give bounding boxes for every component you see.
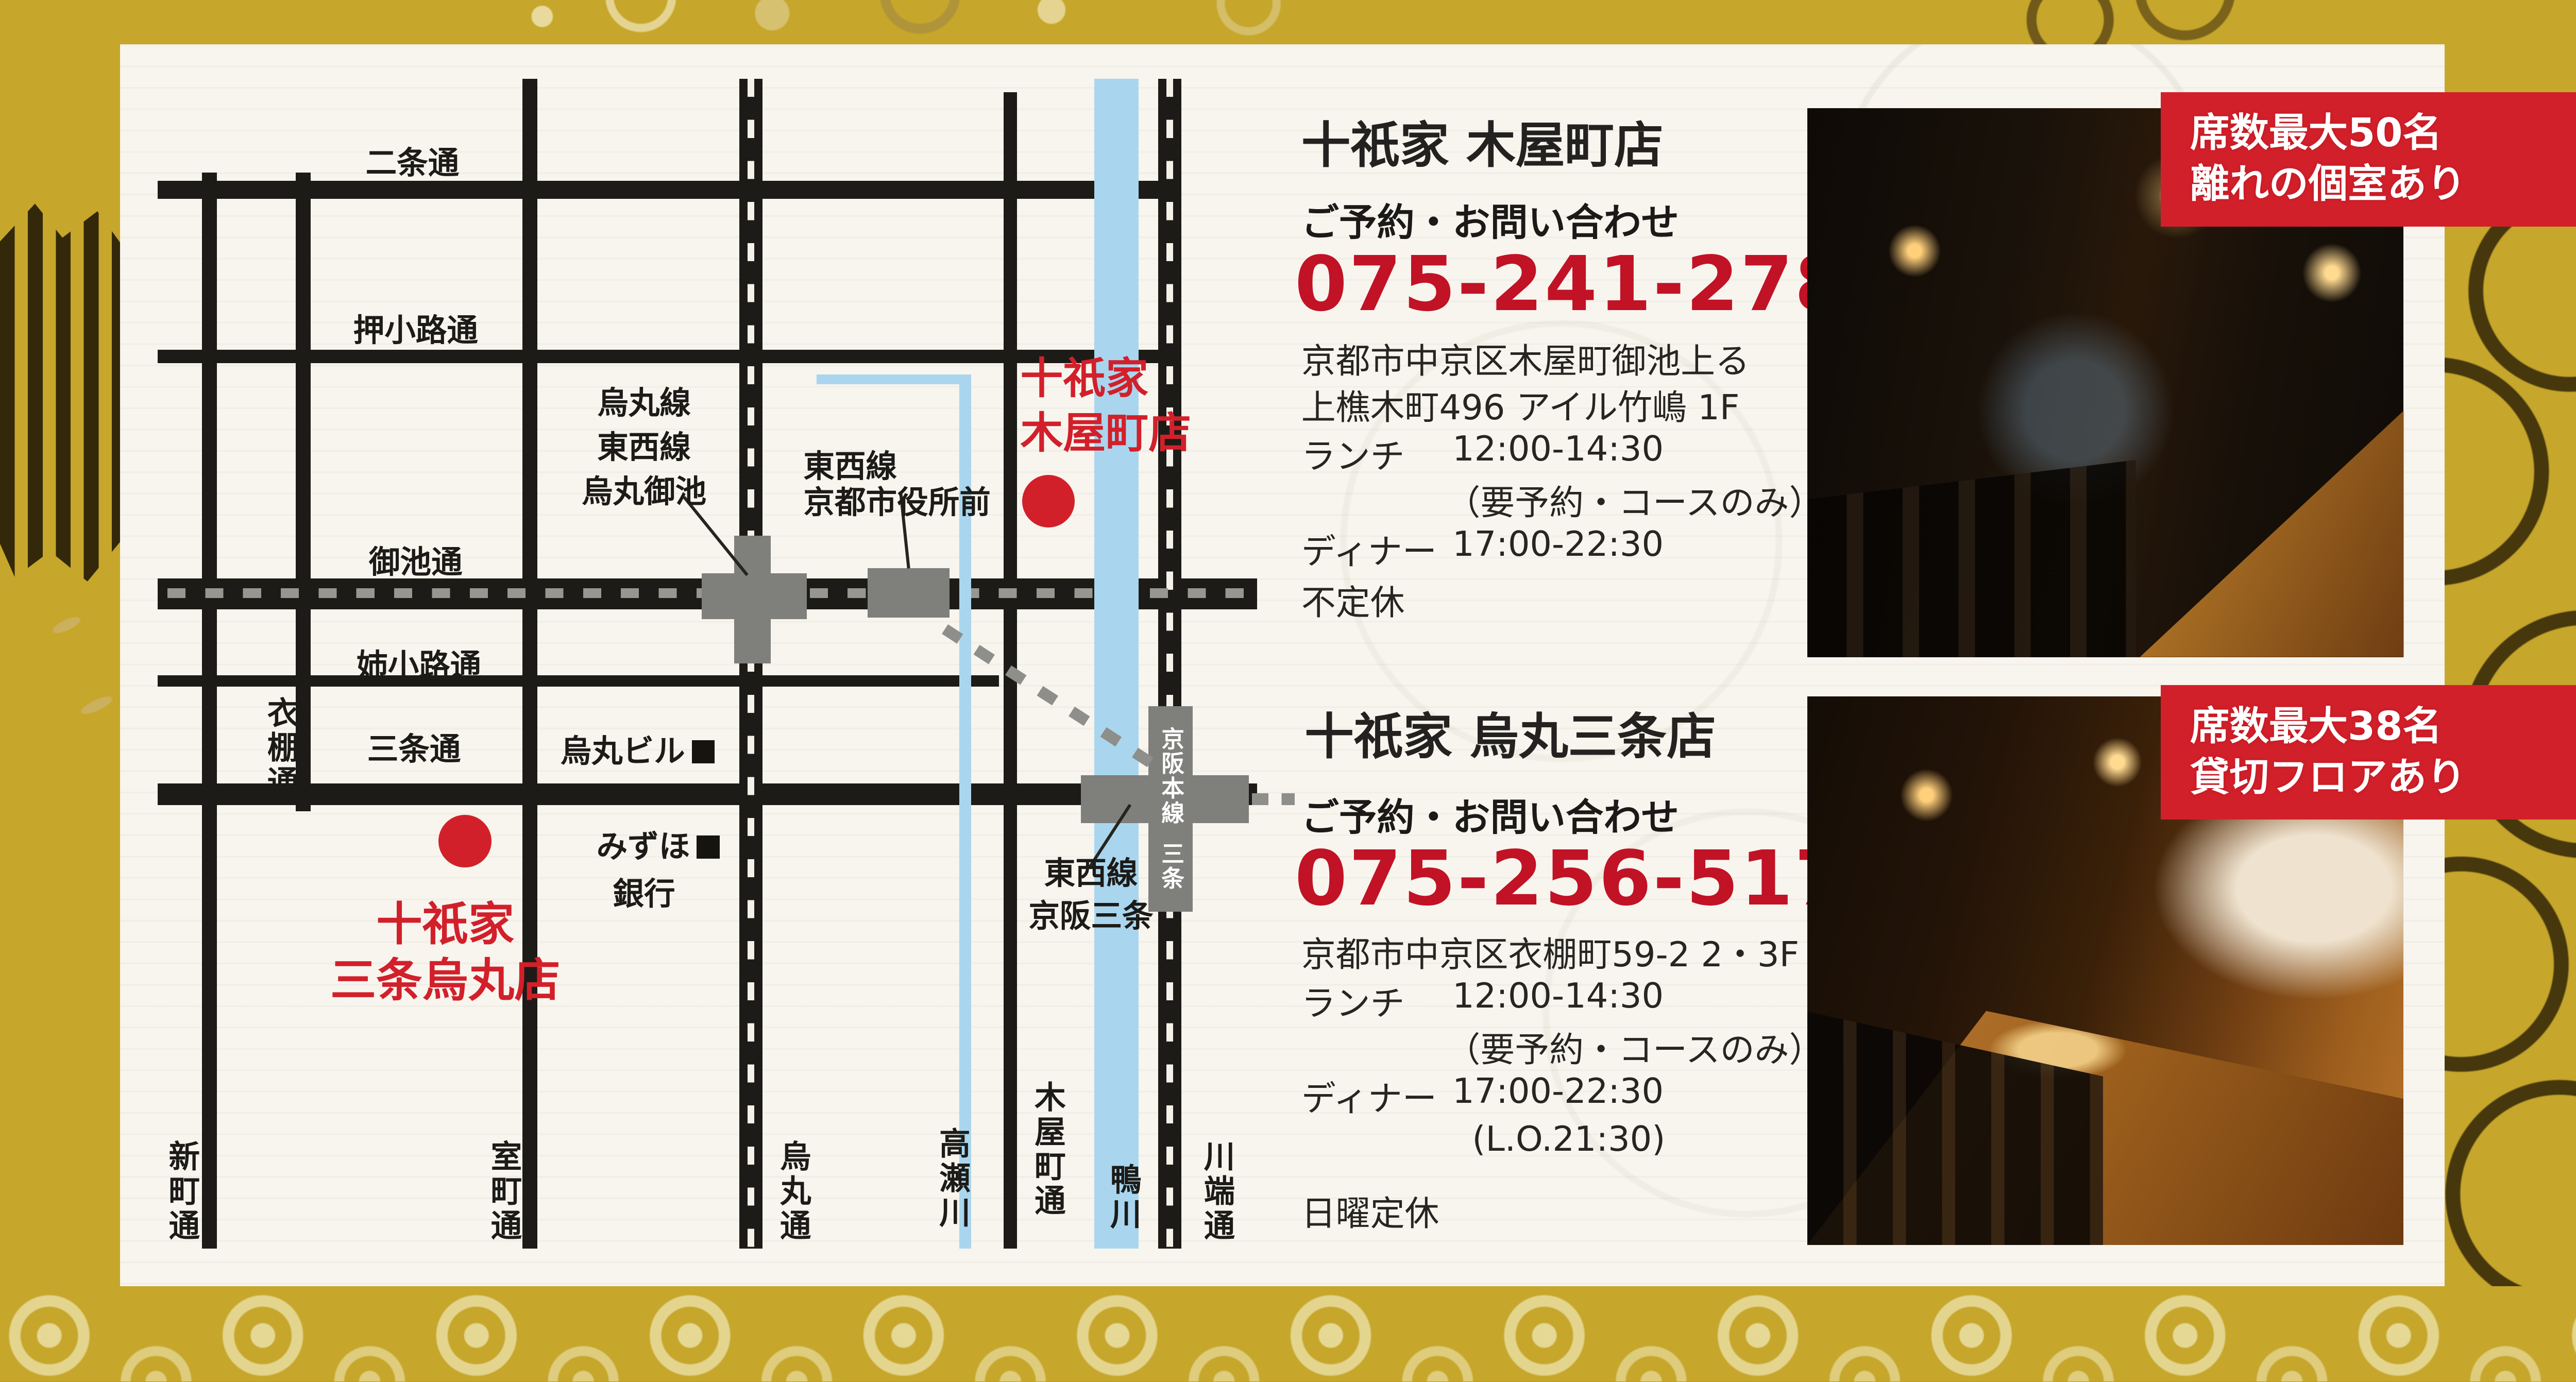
store2-lunch-hours: 12:00-14:30 <box>1452 976 1664 1016</box>
store1-dinner-label: ディナー <box>1301 524 1437 574</box>
building-square-icon <box>692 740 715 763</box>
road-shinmachi-dori <box>202 173 217 1249</box>
store2-dinner-hours: 17:00-22:30 <box>1452 1071 1664 1111</box>
store-map-label-line: 十祇家 <box>317 897 573 952</box>
station-karasuma-oike-horizontal-bar <box>702 573 807 619</box>
street-label-oshikoji: 押小路通 <box>335 305 497 350</box>
station-label-line: 京阪三条 <box>1012 895 1170 938</box>
store-map-label-sanjo-karasuma: 十祇家 三条烏丸店 <box>317 897 573 1009</box>
road-anekoji-dori <box>158 675 999 687</box>
badge-line: 席数最大50名 <box>2190 108 2576 159</box>
store1-closed-days: 不定休 <box>1301 575 1405 625</box>
store1-lunch-note: （要予約・コースのみ） <box>1446 475 1823 525</box>
station-label-line: 京都市役所前 <box>803 485 990 521</box>
store2-dinner-note: (L.O.21:30) <box>1472 1119 1665 1159</box>
station-label-line: 東西線 <box>575 425 713 470</box>
street-label-kiyamachi: 木屋町通 <box>1025 1081 1070 1219</box>
store1-dinner-hours: 17:00-22:30 <box>1452 524 1664 564</box>
building-square-icon <box>697 835 720 859</box>
store2-closed-days: 日曜定休 <box>1301 1186 1439 1236</box>
street-label-kawabata: 川端通 <box>1194 1140 1239 1243</box>
store1-lunch-label: ランチ <box>1301 429 1405 479</box>
store-location-dot-sanjo-karasuma <box>438 815 491 867</box>
store-location-dot-kiyamachi <box>1022 475 1075 527</box>
landmark-label-line: 銀行 <box>613 871 719 918</box>
station-label-shiyakusho-mae: 東西線 京都市役所前 <box>803 449 990 521</box>
landmark-mizuho-bank: みずほ 銀行 <box>597 823 720 918</box>
store2-address-line1: 京都市中京区衣棚町59-2 2・3F <box>1301 927 1799 977</box>
landmark-karasuma-building: 烏丸ビル <box>560 726 715 771</box>
store2-title: 十祇家 烏丸三条店 <box>1304 696 1716 768</box>
street-label-oike: 御池通 <box>355 537 477 582</box>
landmark-label-line: みずほ <box>597 829 690 865</box>
store1-contact-label: ご予約・お問い合わせ <box>1301 192 1679 247</box>
store-map-label-line: 十祇家 <box>1020 351 1191 405</box>
street-label-sanjo: 三条通 <box>353 724 475 769</box>
station-label-line: 烏丸線 <box>575 381 713 425</box>
background-pattern-left-motif <box>0 203 125 581</box>
badge-line: 離れの個室あり <box>2190 159 2576 210</box>
station-label-tozai-keihan-sanjo: 東西線 京阪三条 <box>1012 852 1170 938</box>
river-label-kamogawa: 鴨川 <box>1101 1163 1146 1232</box>
street-label-nijo: 二条通 <box>351 138 473 183</box>
background-pattern-seigaiha-right <box>2445 44 2576 1288</box>
keihan-rail-line <box>1158 79 1181 1249</box>
station-label-line: 東西線 <box>1012 852 1170 895</box>
badge-line: 貸切フロアあり <box>2190 753 2576 804</box>
store1-address-line1: 京都市中京区木屋町御池上る <box>1301 333 1750 383</box>
landmark-label: みずほ <box>597 823 720 871</box>
street-label-shinmachi: 新町通 <box>159 1140 204 1243</box>
store2-lunch-label: ランチ <box>1301 976 1405 1026</box>
store-map-label-kiyamachi: 十祇家 木屋町店 <box>1020 351 1191 459</box>
street-label-karasuma: 烏丸通 <box>771 1140 816 1243</box>
station-shiyakusho-mae-box <box>868 568 950 618</box>
flyer: 京阪本線三条 二条通 押小路通 御池通 姉小路通 三条通 衣棚通 新町通 室町通… <box>0 0 2576 1381</box>
store-map-label-line: 木屋町店 <box>1020 406 1191 460</box>
store1-capacity-badge: 席数最大50名 離れの個室あり <box>2161 92 2576 227</box>
store-map-label-line: 三条烏丸店 <box>317 953 573 1009</box>
background-pattern-bottom <box>0 1286 2576 1381</box>
river-label-takasegawa: 高瀬川 <box>930 1127 975 1231</box>
station-label-line: 烏丸御池 <box>575 470 713 514</box>
road-karasuma-dori <box>739 79 762 1249</box>
landmark-label: 烏丸ビル <box>560 733 685 770</box>
river-kamogawa <box>1094 79 1139 1249</box>
station-label-line: 東西線 <box>803 449 990 485</box>
badge-line: 席数最大38名 <box>2190 702 2576 753</box>
street-label-anekoji: 姉小路通 <box>338 641 500 686</box>
store1-lunch-hours: 12:00-14:30 <box>1452 429 1664 469</box>
road-kiyamachi-dori <box>1004 92 1017 1249</box>
store1-address-line2: 上樵木町496 アイル竹嶋 1F <box>1301 380 1740 430</box>
store2-contact-label: ご予約・お問い合わせ <box>1301 787 1679 842</box>
station-label-karasuma-oike: 烏丸線 東西線 烏丸御池 <box>575 381 713 514</box>
store2-dinner-label: ディナー <box>1301 1071 1437 1121</box>
road-muromachi-dori <box>522 79 537 1249</box>
river-takasegawa-horizontal <box>817 374 968 384</box>
store2-capacity-badge: 席数最大38名 貸切フロアあり <box>2161 685 2576 820</box>
store2-lunch-note: （要予約・コースのみ） <box>1446 1022 1823 1072</box>
background-pattern-top <box>0 0 2576 44</box>
street-label-koromodana: 衣棚通 <box>258 696 303 800</box>
street-label-muromachi: 室町通 <box>481 1140 526 1243</box>
keihan-line-label: 京阪本線 <box>1148 727 1193 825</box>
store1-title: 十祇家 木屋町店 <box>1301 105 1664 177</box>
